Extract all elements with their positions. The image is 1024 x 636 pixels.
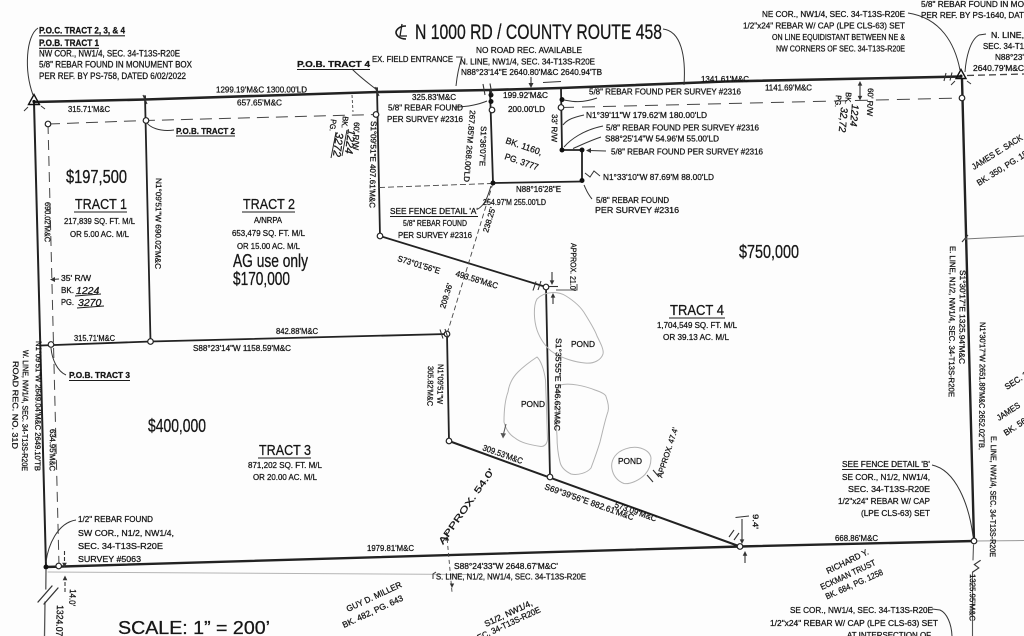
svg-text:690.02'M&C: 690.02'M&C [43, 202, 52, 242]
svg-text:SW COR., N1/2, NW1/4,: SW COR., N1/2, NW1/4, [78, 528, 174, 538]
svg-text:N. LINE,: N. LINE, [991, 30, 1024, 40]
svg-text:SE COR., NW1/4, SEC. 34-T13S-R: SE COR., NW1/4, SEC. 34-T13S-R20E [790, 605, 933, 615]
svg-text:S1°36'07"E: S1°36'07"E [478, 126, 488, 166]
svg-text:657.65'M&C: 657.65'M&C [237, 98, 282, 108]
svg-text:668.86'M&C: 668.86'M&C [835, 533, 878, 543]
svg-text:1325.95'M&C: 1325.95'M&C [968, 574, 977, 621]
svg-text:S1°09'51"E 407.61'M&C: S1°09'51"E 407.61'M&C [367, 121, 378, 208]
svg-text:POND: POND [521, 399, 545, 409]
svg-text:PER SURVEY #2316: PER SURVEY #2316 [398, 230, 472, 240]
svg-text:A/NRPA: A/NRPA [254, 215, 282, 225]
svg-text:$400,000: $400,000 [148, 416, 206, 436]
svg-text:N88°23'14"E 2640.80'M&C 2640.9: N88°23'14"E 2640.80'M&C 2640.94'TB [461, 67, 602, 77]
svg-text:5/8" REBAR FOUND IN MO: 5/8" REBAR FOUND IN MO [921, 0, 1024, 9]
svg-text:OR 5.00 AC. M/L: OR 5.00 AC. M/L [70, 229, 129, 239]
svg-text:(LPE CLS-63) SET: (LPE CLS-63) SET [861, 508, 930, 518]
svg-text:871,202 SQ. FT. M/L: 871,202 SQ. FT. M/L [248, 460, 322, 470]
svg-text:634.95'M&C: 634.95'M&C [48, 429, 57, 471]
svg-text:NO ROAD REC. AVAILABLE: NO ROAD REC. AVAILABLE [476, 45, 582, 55]
svg-text:P.O.B. TRACT 4: P.O.B. TRACT 4 [297, 59, 370, 69]
svg-text:ON LINE EQUIDISTANT BETWEEN NE: ON LINE EQUIDISTANT BETWEEN NE & [772, 32, 905, 42]
svg-text:325.83'M&C: 325.83'M&C [412, 92, 456, 102]
svg-text:AG use only: AG use only [233, 251, 308, 271]
svg-text:$197,500: $197,500 [66, 167, 127, 187]
svg-text:POND: POND [571, 339, 595, 349]
svg-text:P.O.C. TRACT 2, 3, & 4: P.O.C. TRACT 2, 3, & 4 [39, 26, 126, 37]
svg-text:217,839 SQ. FT. M/L: 217,839 SQ. FT. M/L [64, 216, 135, 226]
svg-text:5/8" REBAR FOUND PER SURVEY #2: 5/8" REBAR FOUND PER SURVEY #2316 [589, 87, 741, 97]
svg-text:BK.: BK. [843, 92, 853, 105]
svg-text:S88°24'33"W 2648.67'M&C': S88°24'33"W 2648.67'M&C' [454, 561, 558, 571]
svg-text:1341.61'M&C: 1341.61'M&C [701, 74, 749, 84]
svg-text:1324.07'M&C: 1324.07'M&C [52, 605, 65, 636]
svg-text:5/8" REBAR FOUND IN MONUMENT B: 5/8" REBAR FOUND IN MONUMENT BOX [39, 60, 192, 70]
svg-text:N88°23': N88°23' [995, 52, 1024, 62]
svg-text:33' R/W: 33' R/W [550, 114, 559, 143]
svg-text:E. LINE, N1/2, NW1/4, SEC. 34-: E. LINE, N1/2, NW1/4, SEC. 34-T13S-R20E [947, 246, 957, 397]
svg-text:TRACT 2: TRACT 2 [243, 196, 295, 213]
svg-text:PER SURVEY #2316: PER SURVEY #2316 [595, 205, 679, 215]
svg-text:OR 39.13 AC. M/L: OR 39.13 AC. M/L [663, 332, 729, 342]
svg-text:1979.81'M&C: 1979.81'M&C [367, 543, 414, 553]
svg-text:TRACT 4: TRACT 4 [670, 302, 724, 319]
svg-text:PER SURVEY #2316: PER SURVEY #2316 [387, 114, 463, 124]
svg-text:60' R/W: 60' R/W [865, 88, 875, 117]
svg-text:$750,000: $750,000 [739, 242, 799, 262]
svg-text:TRACT 1: TRACT 1 [75, 196, 127, 213]
svg-text:ROAD REC. NO. 31D: ROAD REC. NO. 31D [10, 361, 20, 449]
svg-text:$170,000: $170,000 [233, 269, 290, 289]
svg-text:N. LINE, NW1/4, SEC. 34-T13S-R: N. LINE, NW1/4, SEC. 34-T13S-R20E [460, 57, 595, 67]
svg-text:5/8" REBAR FOUND: 5/8" REBAR FOUND [388, 103, 463, 113]
svg-text:NE COR., NW1/4, SEC. 34-T13S-R: NE COR., NW1/4, SEC. 34-T13S-R20E [762, 9, 905, 19]
svg-text:2640.79'M&C: 2640.79'M&C [973, 63, 1024, 73]
svg-text:200.00'LD: 200.00'LD [508, 104, 545, 114]
svg-text:E. LINE, NW1/4, SEC. 34-T13S-R: E. LINE, NW1/4, SEC. 34-T13S-R20E [988, 436, 998, 557]
svg-text:P.O.B. TRACT 1: P.O.B. TRACT 1 [39, 38, 100, 49]
svg-text:1/2"x24" REBAR W/ CAP (LPE CLS: 1/2"x24" REBAR W/ CAP (LPE CLS-63) SET [743, 21, 905, 31]
svg-text:1/2"x24" REBAR W/ CAP: 1/2"x24" REBAR W/ CAP [838, 496, 930, 506]
svg-text:N1°09'51"W: N1°09'51"W [435, 364, 445, 405]
svg-text:SE COR., N1/2, NW1/4,: SE COR., N1/2, NW1/4, [842, 472, 930, 482]
svg-text:14.0': 14.0' [67, 589, 78, 607]
svg-text:P.O.B. TRACT 3: P.O.B. TRACT 3 [69, 370, 130, 380]
svg-text:254.97'M 255.00'LD: 254.97'M 255.00'LD [483, 197, 546, 207]
svg-text:5/8" REBAR FOUND PER SURVEY #2: 5/8" REBAR FOUND PER SURVEY #2316 [606, 123, 759, 133]
svg-text:N88°16'28"E: N88°16'28"E [516, 184, 561, 194]
svg-text:5/8" REBAR FOUND: 5/8" REBAR FOUND [403, 218, 467, 228]
svg-text:SCALE: 1” = 200’: SCALE: 1” = 200’ [118, 618, 270, 636]
svg-text:N 1000 RD / COUNTY ROUTE 458: N 1000 RD / COUNTY ROUTE 458 [415, 21, 662, 44]
svg-text:NW CORNERS OF SEC. 34-T13S-R20: NW CORNERS OF SEC. 34-T13S-R20E [776, 44, 905, 54]
svg-text:SEC. 34-T1: SEC. 34-T1 [983, 41, 1024, 51]
svg-text:842.88'M&C: 842.88'M&C [276, 326, 318, 336]
svg-text:BK.: BK. [340, 116, 350, 129]
svg-text:199.92'M&C: 199.92'M&C [503, 90, 548, 100]
svg-text:N1°09'51"W 690.02'M&C: N1°09'51"W 690.02'M&C [153, 178, 163, 269]
svg-text:32,72: 32,72 [836, 107, 849, 133]
svg-text:OR 20.00 AC. M/L: OR 20.00 AC. M/L [253, 472, 317, 482]
svg-text:OR 15.00 AC. M/L: OR 15.00 AC. M/L [237, 241, 300, 251]
svg-text:5/8" REBAR FOUND PER SURVEY #2: 5/8" REBAR FOUND PER SURVEY #2316 [611, 147, 763, 157]
svg-text:TRACT 3: TRACT 3 [259, 442, 311, 459]
svg-text:N1°09'51"W 2649.04'M&C 2649.1: N1°09'51"W 2649.04'M&C 2649.10'TB [33, 341, 43, 471]
svg-text:SURVEY #5063: SURVEY #5063 [78, 554, 141, 564]
svg-text:9.4': 9.4' [751, 514, 760, 530]
svg-text:S88°25'14"W 54.96'M 55.00'LD: S88°25'14"W 54.96'M 55.00'LD [605, 134, 719, 144]
svg-text:1/2"x24" REBAR W/ CAP (LPE CLS: 1/2"x24" REBAR W/ CAP (LPE CLS-63) SET [770, 618, 938, 628]
svg-text:S1°35'55"E 546.62'M&C: S1°35'55"E 546.62'M&C [552, 338, 563, 431]
svg-text:PG.: PG. [61, 297, 74, 307]
svg-text:BK.: BK. [61, 285, 74, 295]
svg-text:PG.: PG. [833, 95, 843, 108]
svg-text:S88°23'14"W 1158.59'M&C: S88°23'14"W 1158.59'M&C [193, 343, 291, 353]
svg-text:SEE FENCE DETAIL 'B': SEE FENCE DETAIL 'B' [842, 459, 930, 469]
svg-text:W. LINE, NW1/4, SEC. 34-T13S-R: W. LINE, NW1/4, SEC. 34-T13S-R20E [20, 350, 30, 471]
svg-text:305.82'M&C: 305.82'M&C [425, 366, 435, 406]
svg-text:PER REF. BY PS-758, DATED 6/02: PER REF. BY PS-758, DATED 6/02/2022 [39, 71, 186, 81]
svg-text:315.71'M&C: 315.71'M&C [74, 333, 115, 343]
svg-text:1,704,549 SQ. FT. M/L: 1,704,549 SQ. FT. M/L [657, 320, 737, 330]
svg-text:NW COR., NW1/4, SEC. 34-T13S-R: NW COR., NW1/4, SEC. 34-T13S-R20E [39, 49, 180, 59]
svg-text:PG.: PG. [328, 119, 338, 132]
svg-text:POND: POND [618, 456, 642, 466]
svg-text:35' R/W: 35' R/W [61, 273, 91, 283]
svg-text:653,479 SQ. FT. M/L: 653,479 SQ. FT. M/L [232, 228, 305, 238]
svg-text:PER REF. BY PS-1640, DAT: PER REF. BY PS-1640, DAT [921, 10, 1024, 20]
svg-text:SEC. 34-T13S-R20E: SEC. 34-T13S-R20E [78, 541, 163, 551]
svg-text:5/8" REBAR FOUND: 5/8" REBAR FOUND [596, 195, 669, 205]
svg-text:1/2" REBAR FOUND: 1/2" REBAR FOUND [78, 514, 153, 524]
svg-text:EX. FIELD ENTRANCE: EX. FIELD ENTRANCE [372, 54, 453, 64]
svg-text:315.71'M&C: 315.71'M&C [68, 104, 110, 114]
svg-text:N1°39'11"W 179.62'M 180.00'LD: N1°39'11"W 179.62'M 180.00'LD [586, 110, 707, 120]
svg-text:SEE FENCE DETAIL 'A': SEE FENCE DETAIL 'A' [390, 206, 478, 216]
svg-text:APPROX. 21.0': APPROX. 21.0' [568, 243, 578, 292]
svg-text:SEC. 34-T13S-R20E: SEC. 34-T13S-R20E [848, 484, 930, 494]
svg-text:S1°30'17"E 1325.94'M&C: S1°30'17"E 1325.94'M&C [957, 270, 967, 364]
svg-text:1299.19'M&C 1300.00'LD: 1299.19'M&C 1300.00'LD [216, 85, 307, 95]
svg-text:1141.69'M&C: 1141.69'M&C [765, 83, 812, 93]
svg-text:N1°33'10"W 87.69'M 88.00'LD: N1°33'10"W 87.69'M 88.00'LD [603, 172, 714, 182]
svg-text:AT INTERSECTION OF: AT INTERSECTION OF [847, 630, 931, 636]
svg-text:S. LINE, N1/2, NW1/4, SEC. 34-: S. LINE, N1/2, NW1/4, SEC. 34-T13S-R20E [436, 572, 586, 582]
svg-text:N1°30'17"W 2651.89'M&C 2652.0: N1°30'17"W 2651.89'M&C 2652.02'TB. [977, 322, 987, 450]
svg-text:P.O.B. TRACT 2: P.O.B. TRACT 2 [176, 126, 235, 136]
